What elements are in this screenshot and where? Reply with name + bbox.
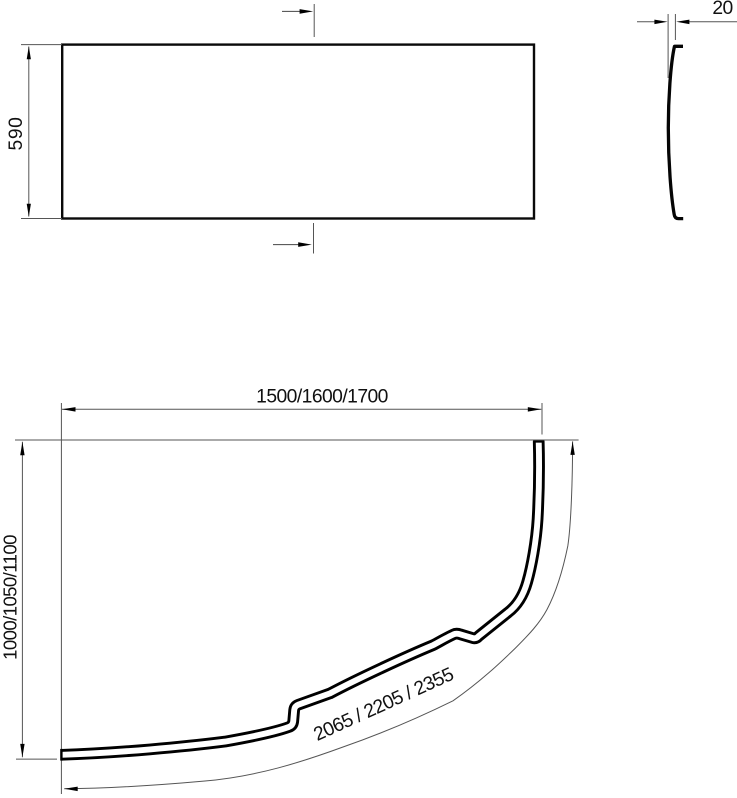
svg-text:1500/1600/1700: 1500/1600/1700 bbox=[256, 387, 388, 408]
svg-text:1000/1050/1100: 1000/1050/1100 bbox=[0, 535, 21, 660]
svg-text:590: 590 bbox=[6, 117, 27, 151]
svg-text:20: 20 bbox=[712, 0, 732, 19]
